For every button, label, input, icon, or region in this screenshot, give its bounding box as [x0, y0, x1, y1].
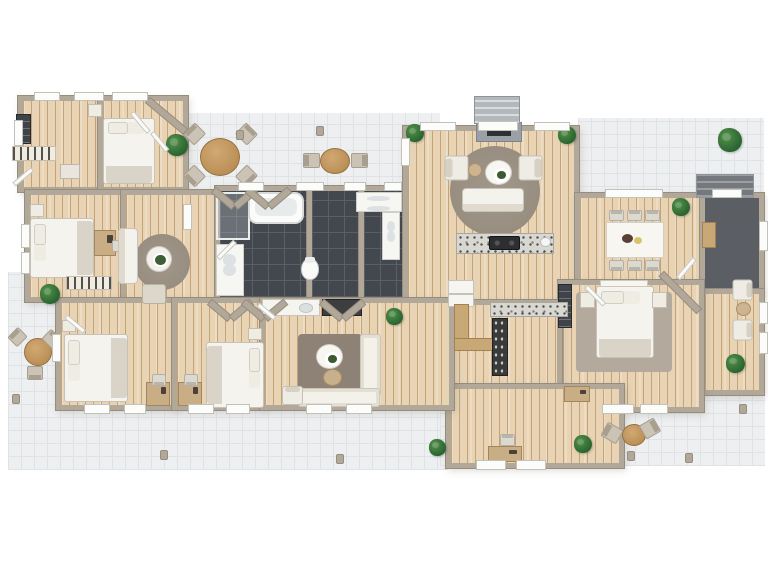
side-table	[468, 163, 482, 177]
window	[124, 404, 146, 414]
fence-post	[12, 394, 20, 404]
chair-wood	[351, 153, 368, 168]
fence-post	[685, 453, 693, 463]
plant	[386, 308, 403, 325]
fence-post	[160, 450, 168, 460]
centerpiece-dark	[622, 234, 633, 243]
fence-post	[336, 454, 344, 464]
table-wood	[320, 148, 350, 174]
table-round-dark	[146, 246, 172, 272]
window	[346, 404, 372, 414]
nightstand	[88, 104, 102, 117]
wood-h	[454, 338, 496, 351]
armchair	[282, 386, 303, 405]
side-table	[736, 302, 751, 316]
window	[34, 92, 60, 101]
window	[238, 182, 264, 191]
window	[602, 404, 634, 414]
dresser	[60, 164, 80, 179]
bed-2	[30, 218, 94, 278]
chair	[645, 260, 660, 271]
vanity	[382, 212, 400, 260]
chair	[627, 260, 642, 271]
window	[384, 182, 402, 191]
ottoman	[142, 284, 166, 304]
bed-4	[206, 342, 264, 408]
window	[420, 122, 456, 131]
armchair	[733, 320, 753, 341]
nightstand	[248, 328, 262, 340]
chair	[500, 434, 515, 446]
bed-master	[596, 286, 654, 358]
table-round-white	[316, 344, 343, 369]
chair	[609, 210, 624, 221]
window	[534, 122, 570, 131]
lounge-sofa	[118, 228, 138, 284]
window	[183, 204, 192, 230]
family-sofa	[360, 334, 381, 396]
plant	[574, 435, 592, 453]
bed-3	[64, 334, 128, 402]
chair-wood	[27, 366, 43, 380]
window	[476, 460, 506, 470]
chair-wood	[303, 153, 320, 168]
fridge	[448, 280, 474, 307]
armchair	[733, 280, 753, 301]
window	[112, 92, 148, 101]
coffee-table	[485, 160, 512, 185]
bathroom-2	[307, 186, 363, 302]
toilet	[301, 258, 319, 280]
den	[446, 384, 624, 468]
vanity	[356, 192, 402, 212]
laundry-counter	[490, 302, 568, 317]
plant	[672, 198, 690, 216]
courtyard-table	[200, 138, 240, 176]
window	[21, 224, 30, 248]
window	[759, 221, 768, 251]
front-porch	[474, 96, 520, 124]
window	[14, 120, 23, 146]
window	[296, 182, 324, 191]
master-desk	[564, 386, 590, 402]
window	[344, 182, 366, 191]
window	[74, 92, 104, 101]
floor-plan	[0, 0, 768, 576]
armchair	[445, 156, 469, 181]
window	[188, 404, 214, 414]
armchair	[519, 156, 543, 181]
plant	[726, 354, 745, 373]
plant	[718, 128, 742, 152]
fence-post	[236, 130, 244, 140]
plant	[429, 439, 446, 456]
nightstand	[652, 292, 667, 308]
chair	[184, 374, 198, 386]
nightstand	[30, 204, 44, 217]
fence-post	[316, 126, 324, 136]
window	[640, 404, 668, 414]
hall-right	[700, 289, 764, 395]
fence-post	[627, 451, 635, 461]
window	[759, 332, 768, 354]
chair	[152, 374, 166, 386]
window	[52, 334, 61, 362]
window	[478, 121, 518, 131]
patio-bottom-left	[8, 406, 448, 470]
chair	[645, 210, 660, 221]
window	[84, 404, 110, 414]
window	[759, 302, 768, 324]
chair	[627, 210, 642, 221]
cooktop	[489, 236, 520, 250]
shelf-white	[600, 280, 648, 287]
plant	[40, 284, 60, 304]
bedroom2-closet	[66, 276, 112, 290]
chair	[609, 260, 624, 271]
window	[401, 138, 410, 166]
window	[226, 404, 250, 414]
pantry-shelves	[492, 318, 508, 376]
living-sofa	[462, 188, 524, 212]
window	[605, 189, 663, 198]
fence-post	[739, 404, 747, 414]
pouf	[323, 369, 342, 386]
window	[712, 189, 742, 198]
centerpiece-gold	[634, 237, 642, 244]
sink-dot	[540, 237, 551, 247]
closet-rail	[12, 146, 56, 161]
mudroom-bench	[702, 222, 716, 248]
window	[516, 460, 546, 470]
window	[306, 404, 332, 414]
plant	[166, 134, 188, 156]
window	[21, 252, 30, 274]
